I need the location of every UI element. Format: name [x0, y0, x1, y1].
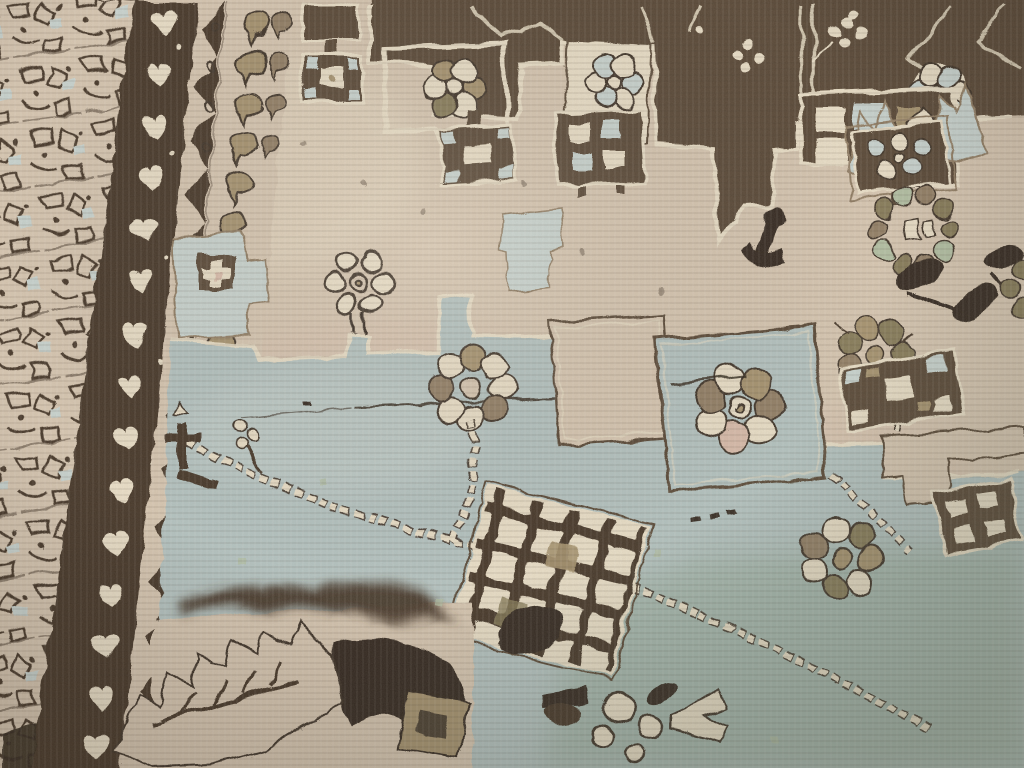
rug-photo-canvas: Antique hand-knotted carpet — close-up d… — [0, 0, 1024, 768]
light-cast — [0, 0, 1024, 768]
rug-photograph: Antique hand-knotted carpet — close-up d… — [0, 0, 1024, 768]
